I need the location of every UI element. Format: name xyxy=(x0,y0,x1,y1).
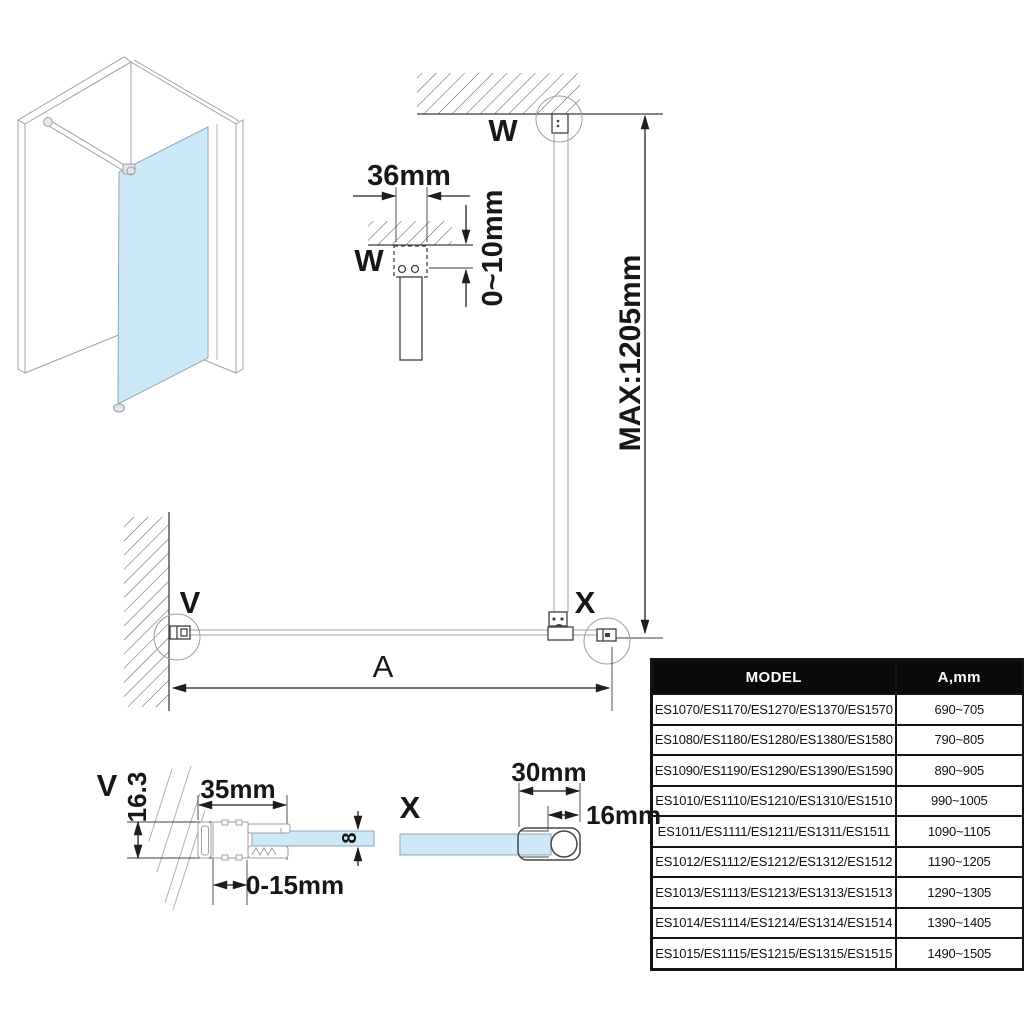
detail-w-label: W xyxy=(354,243,384,278)
model-cell: ES1080/ES1180/ES1280/ES1380/ES1580 xyxy=(652,725,896,756)
detail-x-callout: X 30mm 16mm xyxy=(400,757,662,860)
profile-depth-dimension: 16.3 xyxy=(122,772,152,823)
table-row: ES1090/ES1190/ES1290/ES1390/ES1590 890~9… xyxy=(652,755,1024,786)
detail-x-label: X xyxy=(400,790,421,825)
plan-x-label: X xyxy=(575,585,596,620)
glass-plan xyxy=(189,630,597,635)
elevation-w-label: W xyxy=(488,113,518,148)
isometric-view xyxy=(18,57,243,412)
width-a-dimension: A xyxy=(373,649,394,684)
support-bar xyxy=(554,133,568,612)
bar-clamp xyxy=(123,164,135,174)
top-bracket xyxy=(552,114,568,133)
model-cell: ES1014/ES1114/ES1214/ES1314/ES1514 xyxy=(652,908,896,939)
model-spec-table: MODEL A,mm ES1070/ES1170/ES1270/ES1370/E… xyxy=(650,658,1024,971)
model-cell: ES1070/ES1170/ES1270/ES1370/ES1570 xyxy=(652,694,896,725)
bar-bracket-plan xyxy=(549,612,567,626)
detail-v-callout: V 16.3 35mm 8 0-15mm xyxy=(97,766,374,910)
plan-v-label: V xyxy=(180,585,201,620)
ceiling-bracket xyxy=(394,246,427,277)
elevation-view: W MAX:1205mm xyxy=(417,73,663,638)
table-header-model: MODEL xyxy=(652,660,896,695)
glass-section xyxy=(400,834,551,855)
glass-thickness-dimension: 8 xyxy=(339,832,361,843)
bracket-bar xyxy=(400,277,422,360)
model-cell: ES1011/ES1111/ES1211/ES1311/ES1511 xyxy=(652,816,896,847)
a-value-cell: 990~1005 xyxy=(896,786,1024,817)
bracket-width-dimension: 36mm xyxy=(367,160,451,192)
ceiling-hatch xyxy=(368,221,452,245)
table-header-row: MODEL A,mm xyxy=(652,660,1024,695)
model-cell: ES1013/ES1113/ES1213/ES1313/ES1513 xyxy=(652,877,896,908)
table-row: ES1015/ES1115/ES1215/ES1315/ES1515 1490~… xyxy=(652,938,1024,969)
table-row: ES1010/ES1110/ES1210/ES1310/ES1510 990~1… xyxy=(652,786,1024,817)
a-value-cell: 1290~1305 xyxy=(896,877,1024,908)
table-row: ES1014/ES1114/ES1214/ES1314/ES1514 1390~… xyxy=(652,908,1024,939)
a-value-cell: 890~905 xyxy=(896,755,1024,786)
a-value-cell: 790~805 xyxy=(896,725,1024,756)
wall-plate xyxy=(198,822,211,858)
detail-w-callout: 36mm 0~10mm W xyxy=(353,160,509,360)
a-value-cell: 1390~1405 xyxy=(896,908,1024,939)
model-cell: ES1015/ES1115/ES1215/ES1315/ES1515 xyxy=(652,938,896,969)
profile-width-dimension: 35mm xyxy=(200,774,275,804)
top-flange xyxy=(248,824,290,833)
wall-hatch-lines xyxy=(149,766,205,910)
model-cell: ES1010/ES1110/ES1210/ES1310/ES1510 xyxy=(652,786,896,817)
technical-drawing-page: 36mm 0~10mm W W MAX:1205mm V xyxy=(0,0,1024,1024)
a-value-cell: 1190~1205 xyxy=(896,847,1024,878)
table-row: ES1011/ES1111/ES1211/ES1311/ES1511 1090~… xyxy=(652,816,1024,847)
glass-foot xyxy=(114,404,125,412)
ceiling-gap-dimension: 0~10mm xyxy=(477,190,509,307)
a-value-cell: 1090~1105 xyxy=(896,816,1024,847)
a-value-cell: 1490~1505 xyxy=(896,938,1024,969)
model-cell: ES1012/ES1112/ES1212/ES1312/ES1512 xyxy=(652,847,896,878)
detail-v-label: V xyxy=(97,768,118,803)
clamp-width-dimension: 30mm xyxy=(511,757,586,787)
model-cell: ES1090/ES1190/ES1290/ES1390/ES1590 xyxy=(652,755,896,786)
profile-body xyxy=(213,822,248,858)
wall-hatch xyxy=(124,517,169,707)
max-height-dimension: MAX:1205mm xyxy=(614,255,647,452)
glass-clamp-plan xyxy=(548,627,573,640)
ceiling-hatch xyxy=(417,73,580,114)
adjustment-dimension: 0-15mm xyxy=(246,870,344,900)
table-row: ES1070/ES1170/ES1270/ES1370/ES1570 690~7… xyxy=(652,694,1024,725)
table-row: ES1012/ES1112/ES1212/ES1312/ES1512 1190~… xyxy=(652,847,1024,878)
table-row: ES1013/ES1113/ES1213/ES1313/ES1513 1290~… xyxy=(652,877,1024,908)
table-header-a: A,mm xyxy=(896,660,1024,695)
support-bar-section xyxy=(551,831,577,857)
table-row: ES1080/ES1180/ES1280/ES1380/ES1580 790~8… xyxy=(652,725,1024,756)
a-value-cell: 690~705 xyxy=(896,694,1024,725)
